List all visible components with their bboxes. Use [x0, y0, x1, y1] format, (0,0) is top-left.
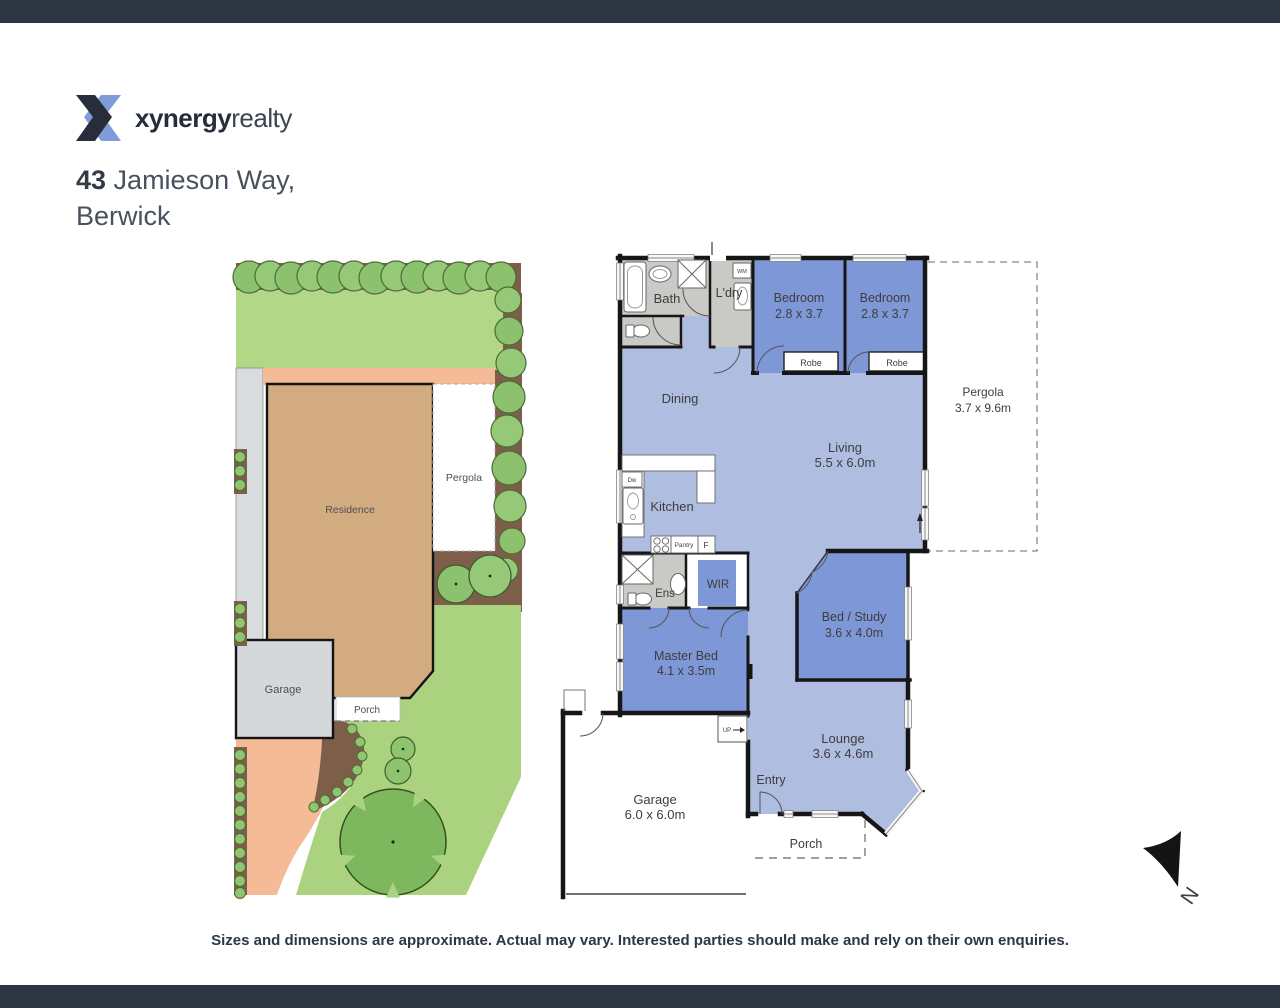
kitchen-label: Kitchen: [650, 499, 693, 514]
wir-label: WIR: [707, 579, 729, 591]
bed-study-label: Bed / Study: [822, 610, 887, 624]
pergola-dims: 3.7 x 9.6m: [955, 401, 1011, 415]
wm-label: WM: [737, 269, 747, 275]
north-arrow-icon: N: [1143, 831, 1204, 909]
dining-label: Dining: [662, 391, 699, 406]
pantry-label: Pantry: [675, 542, 695, 549]
bath-label: Bath: [654, 291, 681, 306]
living-dims: 5.5 x 6.0m: [815, 455, 876, 470]
laundry-label: L'dry: [716, 286, 743, 300]
entry-label: Entry: [756, 773, 786, 787]
north-label: N: [1176, 883, 1204, 909]
master-bed-label: Master Bed: [654, 649, 718, 663]
garage-label: Garage: [633, 792, 676, 807]
garage-dims: 6.0 x 6.0m: [625, 807, 686, 822]
pergola-label: Pergola: [962, 385, 1004, 399]
bed-study-dims: 3.6 x 4.0m: [825, 626, 883, 640]
site-plan: Residence Pergola Garage Porch: [233, 261, 526, 899]
bedroom1-label: Bedroom: [774, 291, 825, 305]
robe2-label: Robe: [886, 358, 908, 368]
lounge-dims: 3.6 x 4.6m: [813, 746, 874, 761]
disclaimer-text: Sizes and dimensions are approximate. Ac…: [0, 932, 1280, 949]
site-pergola-label: Pergola: [446, 472, 482, 484]
fridge-label: F: [703, 540, 708, 550]
dw-label: Dw: [628, 478, 637, 484]
floorplan-drawing: Residence Pergola Garage Porch: [0, 0, 1280, 1008]
floor-plan: UP Bath L'dry WM Dw Bedroom 2.8 x 3.7 Be…: [563, 242, 1037, 897]
tree-row-top: [233, 261, 516, 294]
bedroom1-dims: 2.8 x 3.7: [775, 307, 823, 321]
lounge-label: Lounge: [821, 731, 864, 746]
bedroom2-dims: 2.8 x 3.7: [861, 307, 909, 321]
bedroom2-label: Bedroom: [860, 291, 911, 305]
ensuite-label: Ens: [655, 588, 675, 600]
site-residence-label: Residence: [325, 504, 375, 516]
master-bed-dims: 4.1 x 3.5m: [657, 664, 715, 678]
living-label: Living: [828, 440, 862, 455]
porch-label: Porch: [790, 837, 823, 851]
up-label: UP: [723, 728, 731, 734]
robe1-label: Robe: [800, 358, 822, 368]
site-porch-label: Porch: [354, 705, 380, 716]
stairs-up: UP: [718, 716, 747, 742]
site-garage-label: Garage: [265, 684, 302, 696]
